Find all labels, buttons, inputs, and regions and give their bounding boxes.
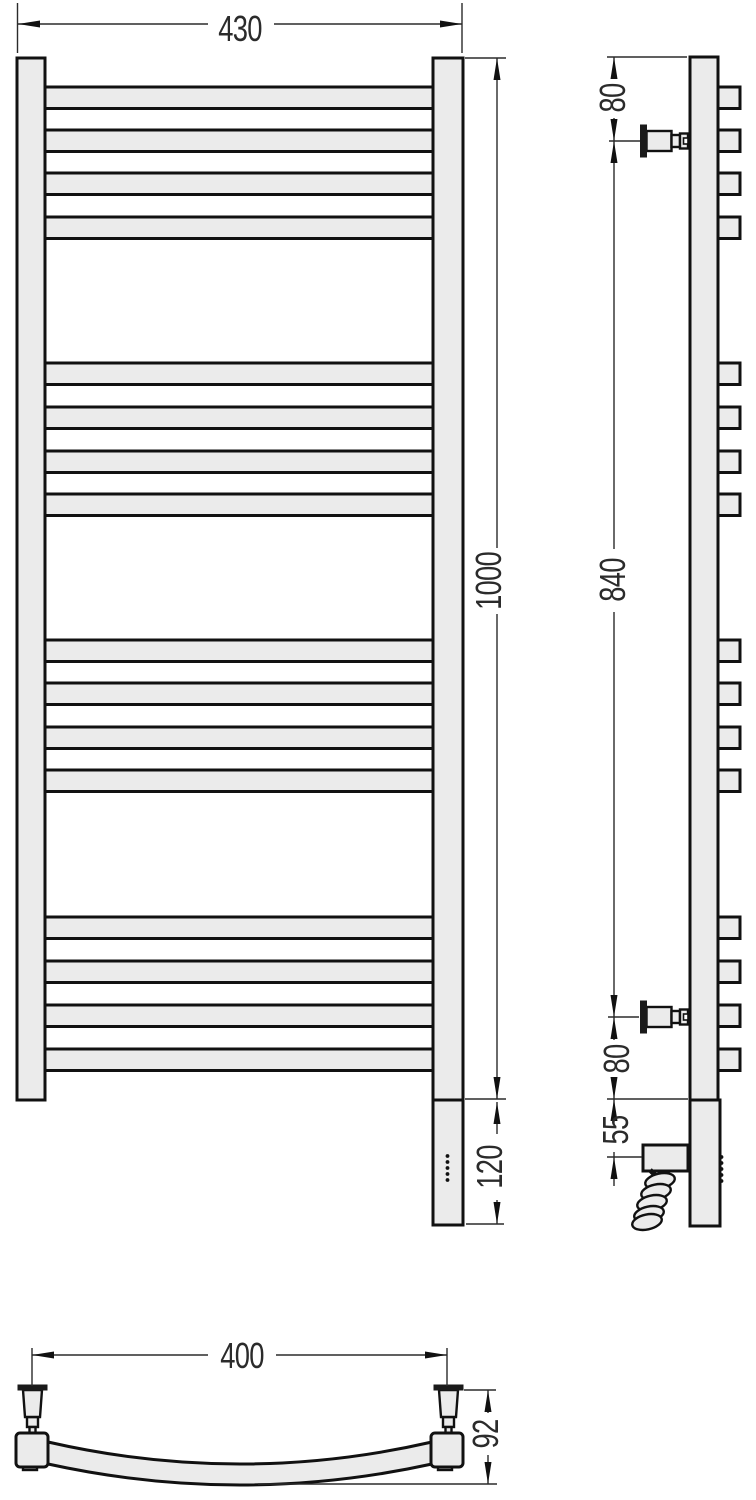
wall-brackets [641, 125, 689, 1033]
indicator-dot [446, 1154, 450, 1158]
top-view [16, 1385, 463, 1485]
coiled-power-cable [631, 1170, 676, 1232]
indicator-dot [720, 1167, 724, 1171]
side-heater-housing [690, 1100, 720, 1226]
bracket-flange [641, 1001, 647, 1033]
side-post [690, 57, 718, 1100]
bracket-neck [672, 135, 681, 147]
side-rung-end [718, 683, 740, 705]
side-rung-end [718, 770, 740, 792]
top-left-bracket [18, 1385, 47, 1435]
towel-rail-drawing [0, 0, 756, 1500]
bracket-neck [672, 1011, 681, 1023]
side-rung-end [718, 727, 740, 749]
front-rung [45, 130, 433, 152]
side-rung-end [718, 407, 740, 429]
front-rung [45, 173, 433, 195]
side-rung-ends [718, 87, 740, 1071]
indicator-dot [720, 1155, 724, 1159]
front-right-post [433, 58, 463, 1100]
top-left-block [16, 1433, 48, 1467]
front-rung [45, 727, 433, 749]
indicator-dot [446, 1166, 450, 1170]
dim-label-element-offset: 55 [595, 1116, 637, 1145]
bracket-clamp-notch [684, 1014, 689, 1020]
dim-label-heater-section: 120 [469, 1145, 511, 1188]
side-rung-end [718, 87, 740, 109]
front-rung [45, 961, 433, 983]
side-rung-end [718, 640, 740, 662]
dim-label-bottom-offset: 80 [596, 1045, 638, 1074]
side-rung-end [718, 494, 740, 516]
technical-drawing-canvas: 430 1000 120 80 840 80 55 400 92 [0, 0, 756, 1500]
indicator-dot [446, 1172, 450, 1176]
dim-label-top-span: 400 [220, 1335, 263, 1377]
front-left-post [17, 58, 45, 1100]
bracket-flange [641, 125, 647, 157]
side-rung-end [718, 917, 740, 939]
bracket-body [647, 131, 672, 151]
side-rung-end [718, 1049, 740, 1071]
front-rung [45, 217, 433, 239]
dim-label-top-offset: 80 [592, 84, 634, 113]
front-rung [45, 917, 433, 939]
dim-label-depth: 92 [465, 1420, 507, 1449]
indicator-dot [720, 1179, 724, 1183]
bracket-body [647, 1007, 672, 1027]
side-rung-end [718, 961, 740, 983]
side-rung-end [718, 173, 740, 195]
side-rung-end [718, 451, 740, 473]
side-rung-end [718, 363, 740, 385]
side-rung-end [718, 1005, 740, 1027]
indicator-dot [720, 1161, 724, 1165]
heating-element-box [643, 1145, 688, 1171]
front-rung [45, 363, 433, 385]
side-rung-end [718, 217, 740, 239]
bracket-clamp-notch [684, 138, 689, 144]
side-view [631, 57, 740, 1232]
front-rung [45, 407, 433, 429]
indicator-dot [446, 1160, 450, 1164]
front-rung [45, 494, 433, 516]
indicator-dot [446, 1178, 450, 1182]
front-rung [45, 87, 433, 109]
front-rungs [45, 87, 433, 1071]
front-rung [45, 683, 433, 705]
front-rung [45, 1005, 433, 1027]
front-rung [45, 640, 433, 662]
dim-label-bracket-span: 840 [592, 558, 634, 601]
front-rung [45, 451, 433, 473]
front-rung [45, 1049, 433, 1071]
indicator-dot [720, 1173, 724, 1177]
curved-rail [48, 1442, 432, 1485]
top-right-block [431, 1433, 463, 1467]
top-right-bracket [434, 1385, 463, 1435]
front-rung [45, 770, 433, 792]
front-view [17, 58, 463, 1225]
side-rung-end [718, 130, 740, 152]
dim-label-front-width: 430 [218, 8, 261, 50]
dim-label-front-height: 1000 [468, 552, 510, 610]
